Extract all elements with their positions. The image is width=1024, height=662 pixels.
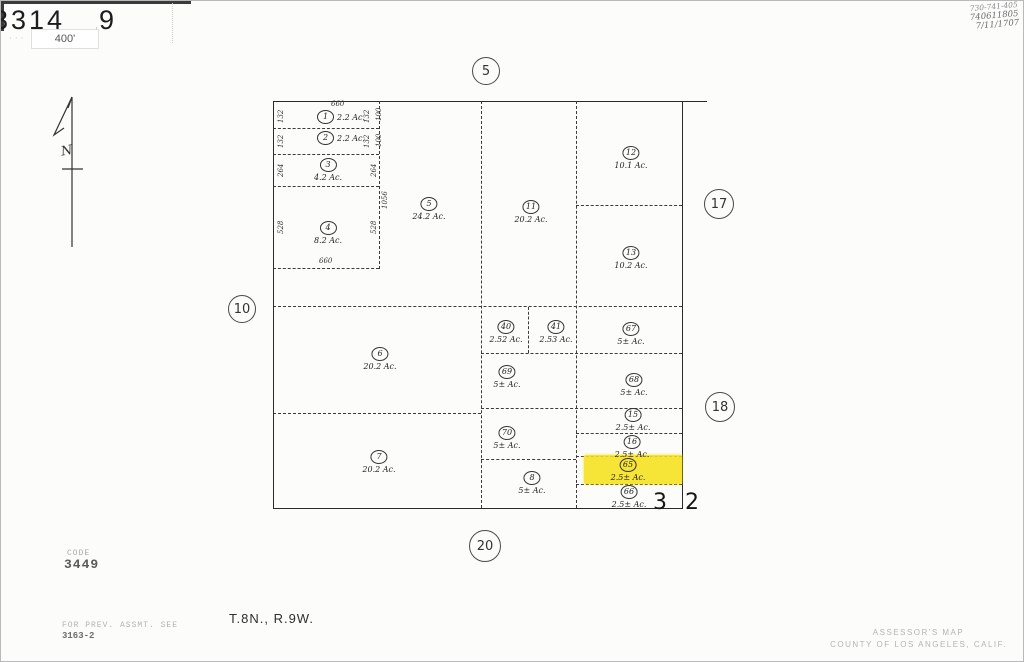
parcel-marker[interactable]: 68 5± Ac. [620,373,647,397]
parcel-marker[interactable]: 7 20.2 Ac. [362,450,395,474]
map-line [273,413,481,414]
parcel-number: 70 [498,426,515,440]
parcel-acreage: 2.2 Ac. [337,134,365,143]
parcel-marker[interactable]: 6 20.2 Ac. [363,347,396,371]
parcel-marker[interactable]: 13 10.2 Ac. [614,246,647,270]
dim-label: 264 [277,164,285,177]
prev-assessment-value: 3163-2 [62,631,94,641]
dim-label: 660 [319,257,332,265]
parcel-acreage: 5± Ac. [617,337,644,346]
parcel-marker[interactable]: 5 24.2 Ac. [412,197,445,221]
parcel-marker[interactable]: 40 2.52 Ac. [489,320,522,344]
parcel-acreage: 20.2 Ac. [363,362,396,371]
map-line [481,353,682,354]
parcel-number: 69 [498,365,515,379]
scan-edge-top [1,1,191,4]
parcel-acreage: 10.2 Ac. [614,261,647,270]
section-label: 5 [482,64,490,79]
parcel-acreage: 2.2 Ac. [337,113,365,122]
parcel-acreage: 2.52 Ac. [489,335,522,344]
section-label: 20 [477,539,494,554]
map-line [273,268,379,269]
parcel-acreage: 20.2 Ac. [362,465,395,474]
parcel-acreage: 5± Ac. [493,380,520,389]
parcel-number: 68 [625,373,642,387]
parcel-marker[interactable]: 70 5± Ac. [493,426,520,450]
dim-label: 660 [331,100,344,108]
parcel-number: 16 [624,435,641,449]
section-label: 18 [712,400,729,415]
map-line [576,101,577,508]
map-boundary-left [273,101,274,509]
section-split-left: 3 [653,490,667,515]
parcel-acreage: 10.1 Ac. [614,161,647,170]
prev-assessment-label: FOR PREV. ASSMT. SEE [62,621,178,630]
faint-marks: · · · [9,34,23,44]
parcel-marker[interactable]: 65 2.5± Ac. [611,458,646,482]
section-circle-west: 10 [228,295,256,323]
scale-label: 400' [55,33,75,45]
dim-label: 100 [375,134,383,147]
parcel-acreage: 5± Ac. [620,388,647,397]
parcel-acreage: 8.2 Ac. [314,236,342,245]
dim-label: 528 [277,221,285,234]
parcel-marker[interactable]: 12 10.1 Ac. [614,146,647,170]
parcel-number: 13 [623,246,640,260]
code-value: 3449 [64,557,99,572]
dim-label: 132 [277,135,285,148]
map-boundary-right [682,101,683,509]
parcel-acreage: 2.5± Ac. [616,423,651,432]
map-line [273,186,379,187]
assessor-line-2: COUNTY OF LOS ANGELES, CALIF. [821,639,1016,651]
map-line [379,101,380,269]
parcel-number: 4 [319,221,336,235]
map-line [576,433,682,434]
parcel-number: 41 [548,320,565,334]
parcel-marker[interactable]: 66 2.5± Ac. [612,485,647,509]
parcel-marker[interactable]: 4 8.2 Ac. [314,221,342,245]
parcel-marker[interactable]: 11 20.2 Ac. [514,200,547,224]
parcel-acreage: 24.2 Ac. [412,212,445,221]
assessor-line-1: ASSESSOR'S MAP [821,627,1016,639]
section-label: 17 [711,197,728,212]
map-line [481,408,682,409]
note-line: 7/11/1707 [971,19,1020,33]
north-arrow: N [41,89,105,259]
header-divider [172,3,173,43]
parcel-number: 8 [523,471,540,485]
parcel-acreage: 4.2 Ac. [314,173,342,182]
parcel-number: 3 [319,158,336,172]
parcel-marker[interactable]: 3 4.2 Ac. [314,158,342,182]
parcel-number: 7 [371,450,388,464]
parcel-acreage: 5± Ac. [518,486,545,495]
parcel-acreage: 20.2 Ac. [514,215,547,224]
map-line [576,205,682,206]
parcel-number: 6 [372,347,389,361]
map-line [528,307,529,353]
section-circle-south: 20 [469,530,501,562]
parcel-number: 12 [623,146,640,160]
parcel-number: 15 [625,408,642,422]
map-line [481,101,482,508]
section-split-right: 2 [685,490,699,515]
handwritten-notes: 730-741-405 740611805 7/11/1707 [969,1,1020,33]
parcel-number: 65 [620,458,637,472]
parcel-acreage: 2.53 Ac. [539,335,572,344]
dim-label: 100 [375,108,383,121]
map-line [273,306,682,307]
parcel-number: 40 [498,320,515,334]
parcel-acreage: 2.5± Ac. [612,500,647,509]
parcel-marker[interactable]: 16 2.5± Ac. [615,435,650,459]
parcel-marker[interactable]: 15 2.5± Ac. [616,408,651,432]
map-line [273,128,379,129]
parcel-marker[interactable]: 69 5± Ac. [493,365,520,389]
parcel-marker[interactable]: 2 2.2 Ac. [317,131,365,145]
parcel-acreage: 2.5± Ac. [611,473,646,482]
dim-label: 132 [277,110,285,123]
map-line [273,154,379,155]
section-circle-north: 5 [472,57,500,85]
parcel-marker[interactable]: 41 2.53 Ac. [539,320,572,344]
section-circle-east-upper: 17 [704,189,734,219]
parcel-number: 1 [317,110,334,124]
parcel-number: 66 [621,485,638,499]
dim-label: 528 [370,221,378,234]
parcel-number: 2 [317,131,334,145]
parcel-marker[interactable]: 8 5± Ac. [518,471,545,495]
dim-label: 1056 [381,191,389,209]
parcel-number: 67 [622,322,639,336]
parcel-marker[interactable]: 1 2.2 Ac. [317,110,365,124]
map-line [481,459,576,460]
parcel-number: 5 [421,197,438,211]
parcel-acreage: 5± Ac. [493,441,520,450]
township-range-label: T.8N., R.9W. [229,611,314,626]
section-circle-east-lower: 18 [705,392,735,422]
assessor-map-sheet: 3314 9 · · · 400' 730-741-405 740611805 … [0,0,1024,662]
scale-box: 400' [31,29,99,49]
page-number: 9 [99,5,117,36]
parcel-number: 11 [523,200,540,214]
section-label: 10 [234,302,251,317]
dim-label: 264 [370,164,378,177]
parcel-marker[interactable]: 67 5± Ac. [617,322,644,346]
assessor-map-title: ASSESSOR'S MAP COUNTY OF LOS ANGELES, CA… [821,627,1016,651]
